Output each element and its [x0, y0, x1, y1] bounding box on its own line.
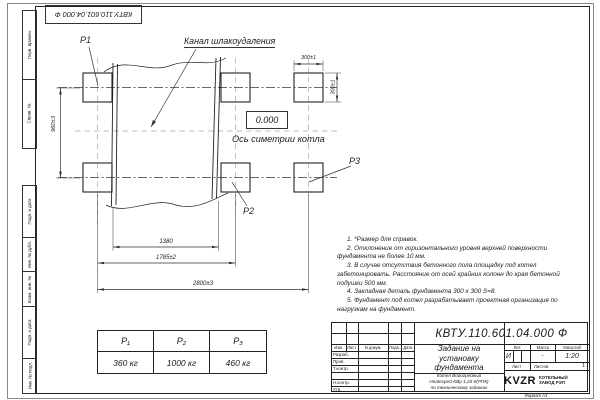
role-razrab: Разраб.: [333, 352, 349, 357]
dim-row-spacing: 960±3: [36, 118, 72, 130]
rev-col-izm: Изм.: [335, 345, 344, 350]
rev-col-docnum: N докум.: [365, 345, 382, 350]
rev-col-data: Дата: [403, 345, 412, 350]
lit-label: Лит.: [513, 345, 521, 350]
note-item: 4. Закладная деталь фундамента 300 x 300…: [337, 288, 585, 297]
role-tkontr: Т.контр.: [333, 366, 349, 371]
load-table-value: 460 кг: [210, 352, 266, 373]
slag-channel-outline: [104, 57, 228, 208]
load-table-header: P₂: [154, 331, 210, 352]
note-item: 1. *Размер для справок.: [337, 236, 585, 245]
company-logo-cell: KVZR КОТЕЛЬНЫЙ ЗАВОД РЭП: [504, 370, 589, 391]
technical-notes: 1. *Размер для справок. 2. Отклонение от…: [337, 236, 585, 314]
extension-lines: [56, 61, 341, 294]
dimension-arrows: [59, 63, 338, 291]
load-table-value: 1000 кг: [154, 352, 210, 373]
logo-text: KVZR: [504, 375, 536, 387]
document-title: Задание на установку фундамента: [414, 344, 504, 373]
load-table: P₁ P₂ P₃ 360 кг 1000 кг 460 кг: [97, 330, 267, 374]
rev-col-list: Лист: [347, 345, 356, 350]
role-nkontr: Н.контр.: [333, 380, 350, 385]
axis-label: Ось симетрии котла: [232, 134, 325, 144]
leader-arrow: [151, 120, 156, 127]
p2-label: P2: [243, 206, 254, 216]
dimension-lines: [61, 64, 338, 290]
channel-label: Канал шлакоудаления: [184, 36, 275, 48]
row-centerlines: [58, 88, 337, 178]
title-block: Изм. Лист N докум. Подп. Дата Разраб. Пр…: [331, 322, 588, 392]
dim-columns-mid: 1785±2: [136, 255, 196, 261]
note-item: 2. Отклонение от горизонтального уровня …: [337, 245, 585, 262]
format-label: Формат А3: [525, 393, 548, 398]
mass-value: -: [530, 350, 555, 362]
dim-columns-overall: 2800±3: [173, 281, 233, 287]
scale-label: Масштаб: [563, 345, 581, 350]
dim-pad-width: 300±1: [294, 55, 323, 61]
sheet-label: Лист: [512, 364, 521, 369]
level-mark: 0.000: [256, 115, 279, 125]
sheets-label: Листов: [534, 364, 548, 369]
note-item: 3. В случае отсутствия бетонного пола пл…: [337, 262, 585, 288]
logo-sub-line2: ЗАВОД РЭП: [539, 381, 568, 383]
dim-pad-height: 300±1: [324, 81, 342, 93]
load-table-value: 360 кг: [98, 352, 154, 373]
logo-sub-line1: КОТЕЛЬНЫЙ: [539, 377, 568, 379]
scale-value: 1:20: [555, 350, 589, 362]
sheets-value: 1: [582, 363, 585, 369]
p1-label: P1: [80, 35, 91, 45]
p3-label: P3: [349, 156, 360, 166]
rev-col-podp: Подп.: [389, 345, 400, 350]
role-prov: Пров.: [333, 359, 345, 364]
level-mark-box: 0.000: [246, 111, 288, 129]
load-table-header: P₃: [210, 331, 266, 352]
note-item: 5. Фундамент под котел разрабатывает про…: [337, 297, 585, 314]
lit-value: И: [504, 350, 513, 362]
anchor-pads: [83, 73, 323, 192]
document-subtitle: Котел Водогрейный Heatexpert-КВр-1,25-К(…: [414, 373, 504, 391]
dim-channel-width: 1380: [146, 239, 186, 245]
titleblock-designation: КВТУ.110.601.04.000 Ф: [414, 323, 589, 344]
drawing-sheet: Перв. примен. Справ. № Подп. и дата Инв.…: [0, 0, 600, 400]
mass-label: Масса: [536, 345, 548, 350]
role-utv: Утв.: [333, 387, 341, 392]
load-table-header: P₁: [98, 331, 154, 352]
